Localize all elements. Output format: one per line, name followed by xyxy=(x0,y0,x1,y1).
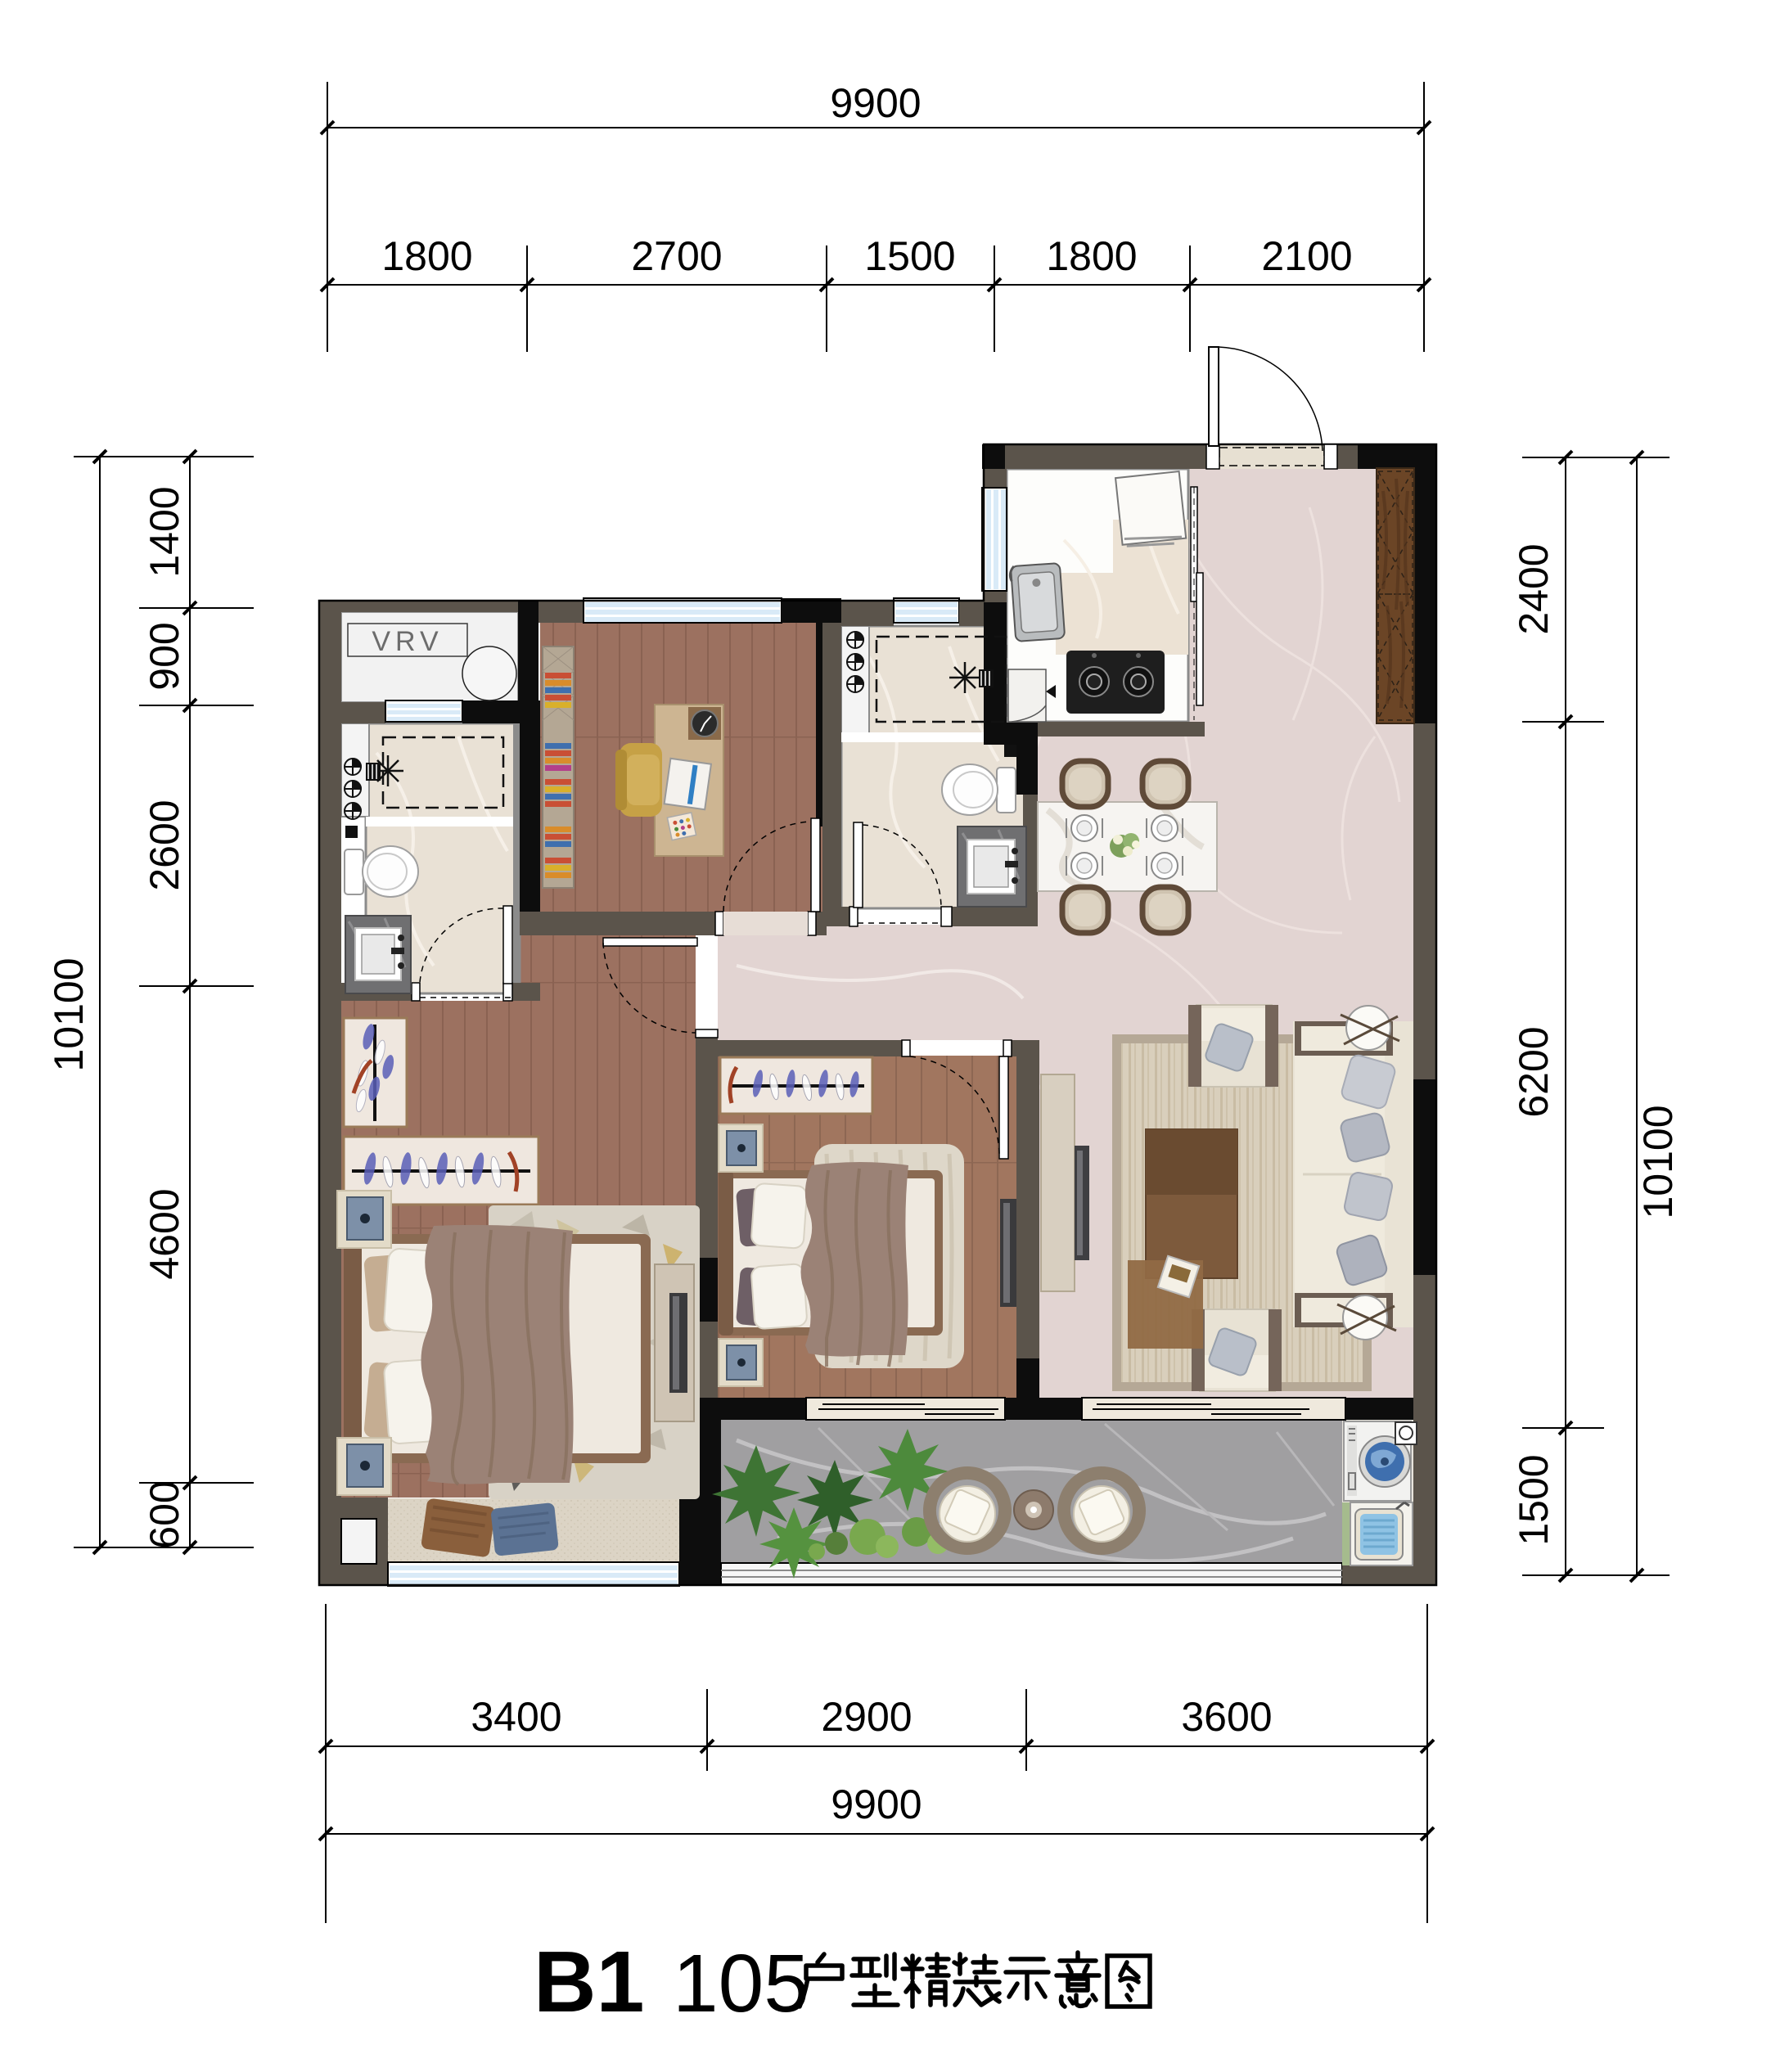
svg-text:4600: 4600 xyxy=(142,1188,187,1279)
svg-text:3600: 3600 xyxy=(1181,1694,1272,1740)
svg-text:1800: 1800 xyxy=(1046,233,1137,279)
svg-text:105: 105 xyxy=(673,1938,809,2029)
svg-text:2700: 2700 xyxy=(631,233,722,279)
svg-text:9900: 9900 xyxy=(830,80,921,126)
svg-text:900: 900 xyxy=(142,622,187,690)
svg-text:1500: 1500 xyxy=(1511,1454,1557,1545)
svg-text:1800: 1800 xyxy=(381,233,472,279)
svg-text:6200: 6200 xyxy=(1511,1026,1557,1117)
svg-text:3400: 3400 xyxy=(471,1694,561,1740)
svg-text:B1: B1 xyxy=(534,1934,645,2030)
svg-text:10100: 10100 xyxy=(46,957,92,1071)
svg-text:600: 600 xyxy=(142,1480,187,1548)
svg-text:10100: 10100 xyxy=(1635,1105,1681,1218)
svg-text:2600: 2600 xyxy=(142,800,187,890)
svg-text:1400: 1400 xyxy=(142,486,187,577)
svg-text:2400: 2400 xyxy=(1511,543,1557,634)
svg-text:1500: 1500 xyxy=(864,233,955,279)
svg-text:2900: 2900 xyxy=(821,1694,912,1740)
svg-text:2100: 2100 xyxy=(1261,233,1352,279)
svg-text:VRV: VRV xyxy=(372,626,443,657)
svg-text:9900: 9900 xyxy=(831,1781,922,1827)
